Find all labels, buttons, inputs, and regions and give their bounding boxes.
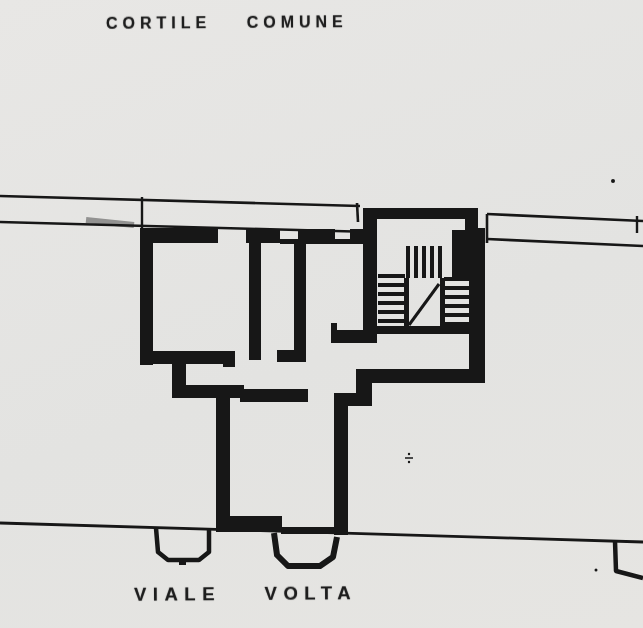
stair-left-wall [363, 208, 377, 343]
stair-tread [378, 283, 405, 287]
stair-corner-block [452, 230, 477, 280]
stair-baluster [430, 246, 434, 278]
stair-tread [444, 286, 469, 290]
stair-tread [444, 313, 469, 317]
partition-wall-a [249, 243, 261, 360]
wall-stub [223, 351, 235, 367]
top-wall [246, 229, 280, 243]
stair-tread [378, 292, 405, 296]
bottom-wall-right-section [356, 369, 470, 383]
entrance-bay-center [274, 533, 337, 566]
stair-tread [378, 274, 405, 278]
wall-stub [331, 323, 337, 333]
entrance-bay-right-partial [615, 541, 643, 578]
scan-mark [408, 461, 410, 463]
top-wall [298, 229, 335, 244]
boundary-tick-left [357, 203, 358, 222]
stair-tread [444, 304, 469, 308]
courtyard-boundary-upper-left [0, 196, 360, 206]
stair-baluster [422, 246, 426, 278]
stair-bay-top-wall [368, 208, 477, 219]
stair-tread [444, 295, 469, 299]
street-label: VIALE VOLTA [134, 582, 357, 606]
wing-bottom-wall [216, 516, 282, 532]
scan-mark [408, 453, 410, 455]
stair-baluster [406, 246, 410, 278]
stair-baluster [414, 246, 418, 278]
left-exterior-wall [140, 228, 153, 365]
room-bottom-wall [140, 351, 235, 364]
partition-foot [277, 350, 306, 362]
courtyard-boundary-upper-right [487, 214, 643, 221]
stair-tread [444, 277, 469, 281]
entrance-bay-left [156, 528, 209, 560]
top-wall [350, 229, 363, 244]
courtyard-label: CORTILE COMUNE [106, 13, 348, 33]
stair-base-line [372, 326, 470, 334]
window-sill [335, 239, 350, 244]
scan-speck [611, 179, 615, 183]
stair-landing-edge [440, 278, 445, 328]
stair-tread [378, 319, 405, 323]
floor-plan-drawing [0, 0, 643, 628]
stair-direction-line [409, 284, 439, 325]
scanned-floorplan-page: CORTILE COMUNE VIALE VOLTA [0, 0, 643, 628]
stair-tread [378, 310, 405, 314]
wing-bottom-sill [281, 527, 334, 534]
wing-left-wall [216, 387, 230, 530]
scan-speck [595, 569, 598, 572]
bay-mark [179, 558, 186, 565]
mid-wall [172, 385, 244, 398]
stair-tread [378, 301, 405, 305]
partition-wall-b [294, 243, 306, 353]
courtyard-boundary-lower-right [487, 239, 643, 246]
stair-bottom-wall [331, 330, 372, 343]
stair-tread [444, 322, 469, 326]
wing-right-wall [334, 398, 348, 535]
stair-baluster [438, 246, 442, 278]
mid-wall [240, 389, 308, 402]
